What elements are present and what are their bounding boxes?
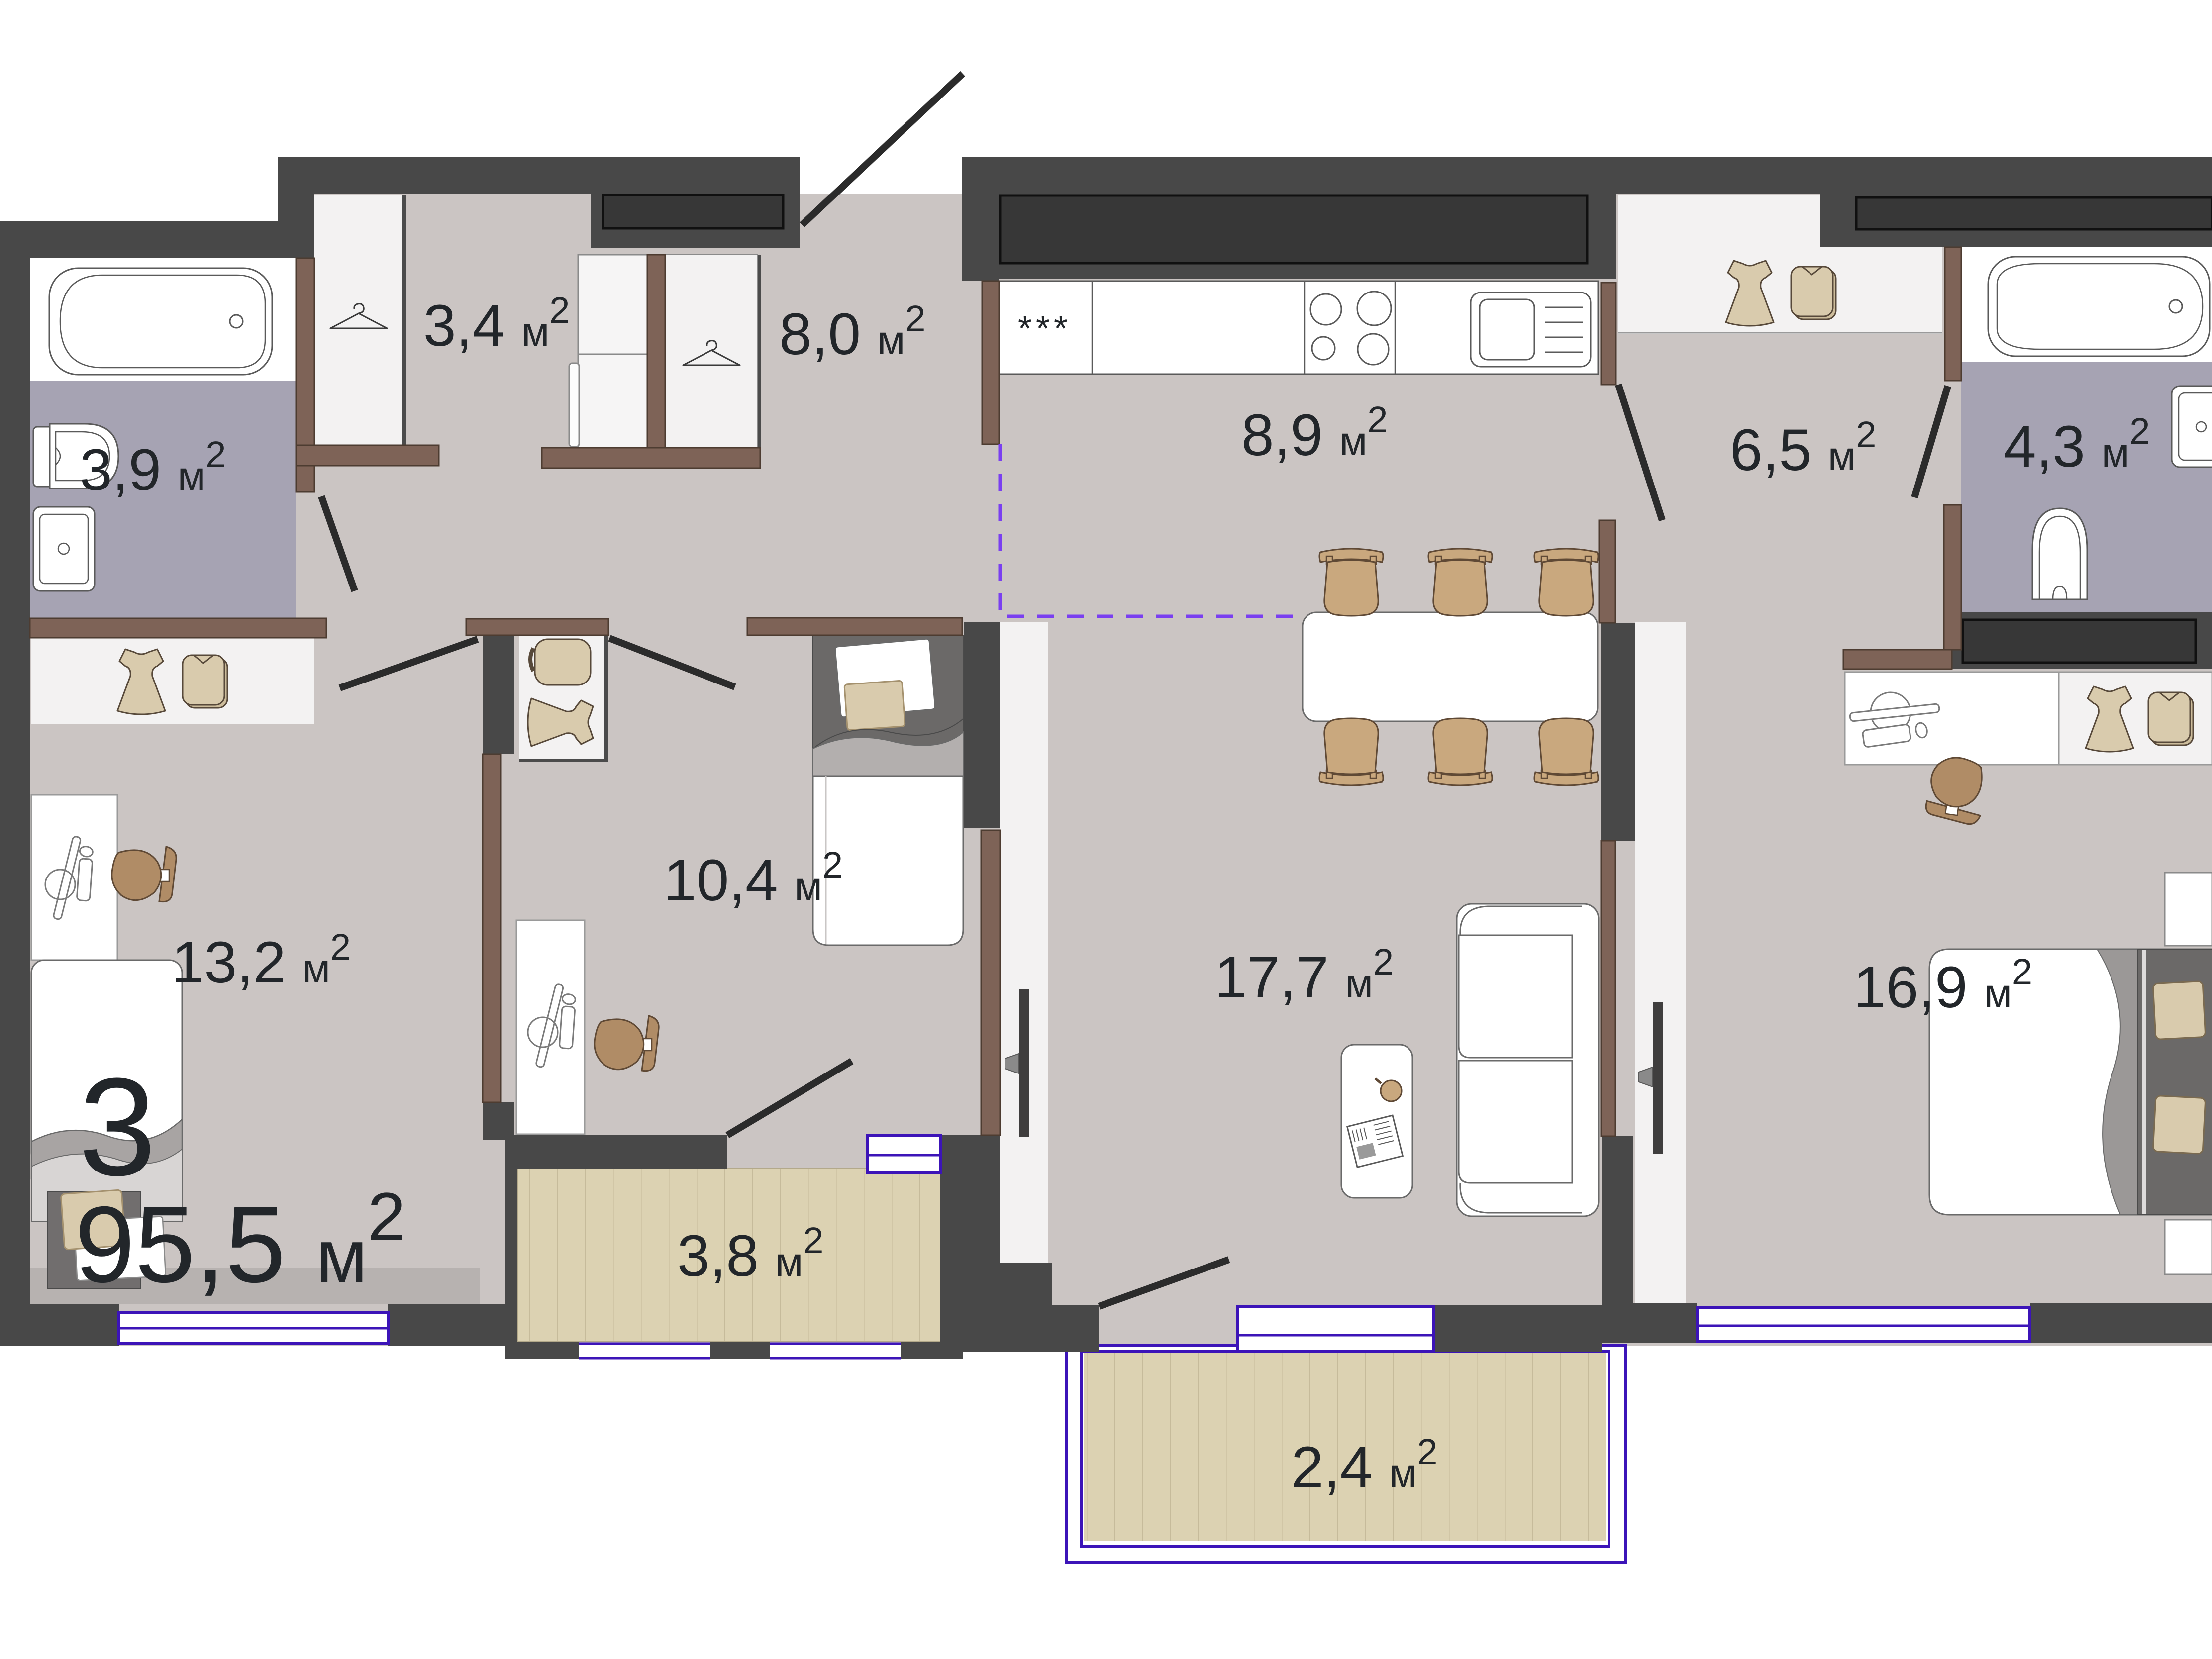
svg-text:3: 3 [79,1050,156,1205]
svg-text:***: *** [1018,309,1072,349]
